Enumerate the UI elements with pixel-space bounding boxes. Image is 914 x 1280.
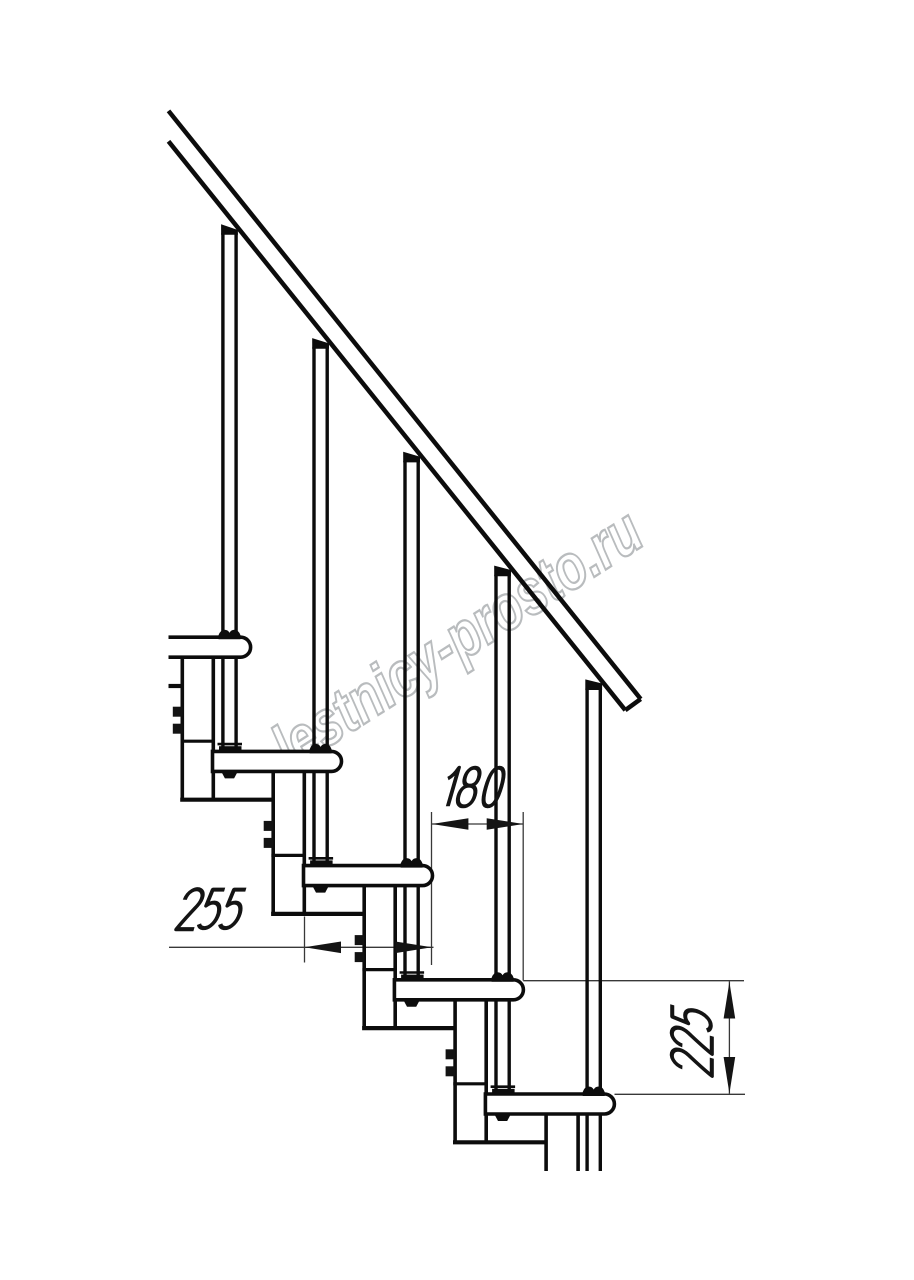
svg-text:lestnicy-prosto.ru: lestnicy-prosto.ru bbox=[259, 494, 655, 783]
